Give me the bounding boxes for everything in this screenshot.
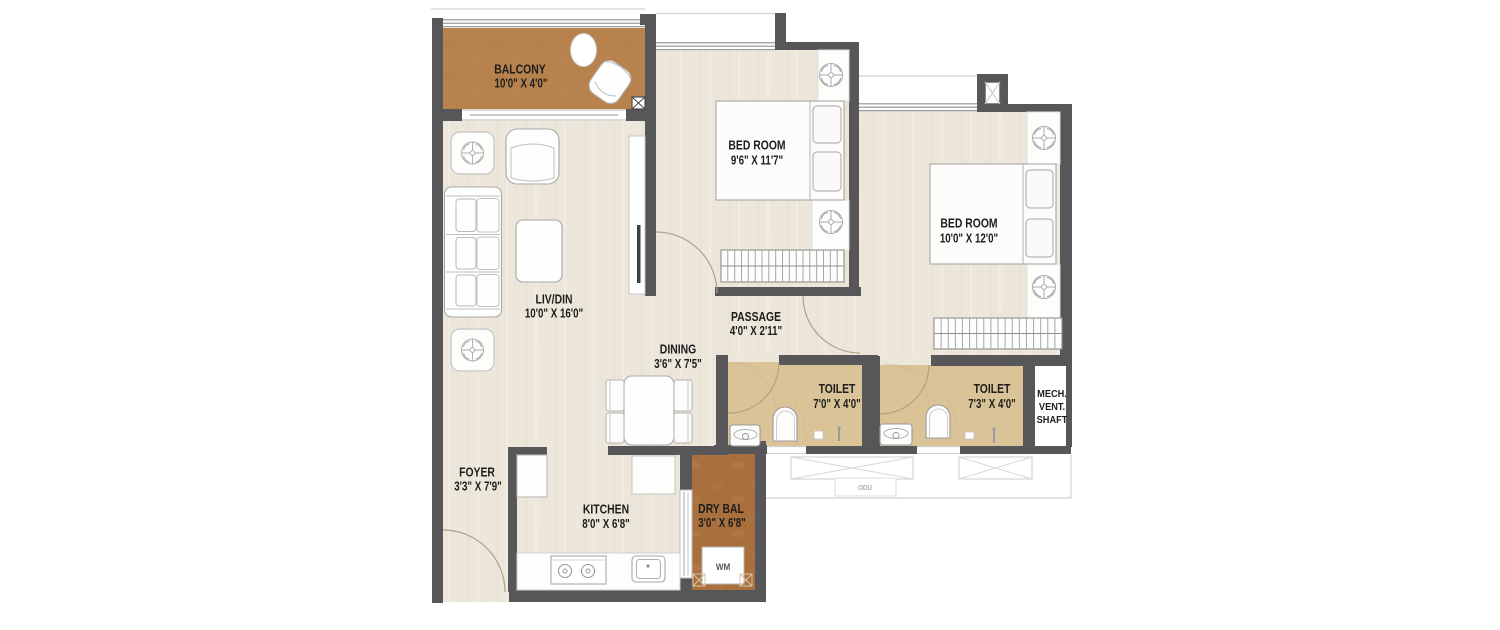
- svg-text:DINING: DINING: [660, 342, 696, 356]
- svg-text:10'0" X 16'0": 10'0" X 16'0": [525, 307, 583, 321]
- svg-text:BED ROOM: BED ROOM: [728, 138, 785, 152]
- svg-text:BED ROOM: BED ROOM: [940, 216, 997, 230]
- svg-text:KITCHEN: KITCHEN: [583, 502, 629, 516]
- svg-text:10'0" X 4'0": 10'0" X 4'0": [495, 77, 548, 91]
- svg-text:8'0" X 6'8": 8'0" X 6'8": [582, 518, 629, 532]
- svg-text:VENT.: VENT.: [1039, 402, 1065, 414]
- svg-text:9'6" X 11'7": 9'6" X 11'7": [731, 154, 783, 168]
- svg-text:7'0" X 4'0": 7'0" X 4'0": [813, 398, 860, 412]
- svg-text:SHAFT: SHAFT: [1037, 415, 1068, 427]
- svg-text:PASSAGE: PASSAGE: [731, 310, 781, 324]
- svg-text:BALCONY: BALCONY: [494, 62, 546, 76]
- svg-text:MECH.: MECH.: [1037, 389, 1067, 401]
- svg-text:3'6" X 7'5": 3'6" X 7'5": [654, 358, 701, 372]
- svg-text:TOILET: TOILET: [974, 382, 1011, 396]
- svg-text:3'0" X 6'8": 3'0" X 6'8": [698, 517, 745, 531]
- svg-text:TOILET: TOILET: [819, 382, 856, 396]
- svg-text:FOYER: FOYER: [459, 465, 495, 479]
- svg-text:3'3" X 7'9": 3'3" X 7'9": [454, 480, 501, 494]
- svg-text:7'3" X 4'0": 7'3" X 4'0": [968, 398, 1015, 412]
- svg-text:4'0" X 2'11": 4'0" X 2'11": [730, 325, 782, 339]
- svg-text:WM: WM: [716, 562, 730, 573]
- svg-text:10'0" X 12'0": 10'0" X 12'0": [940, 232, 998, 246]
- svg-text:LIV/DIN: LIV/DIN: [536, 292, 573, 306]
- svg-text:ODU: ODU: [858, 485, 872, 492]
- svg-text:DRY BAL: DRY BAL: [698, 502, 744, 516]
